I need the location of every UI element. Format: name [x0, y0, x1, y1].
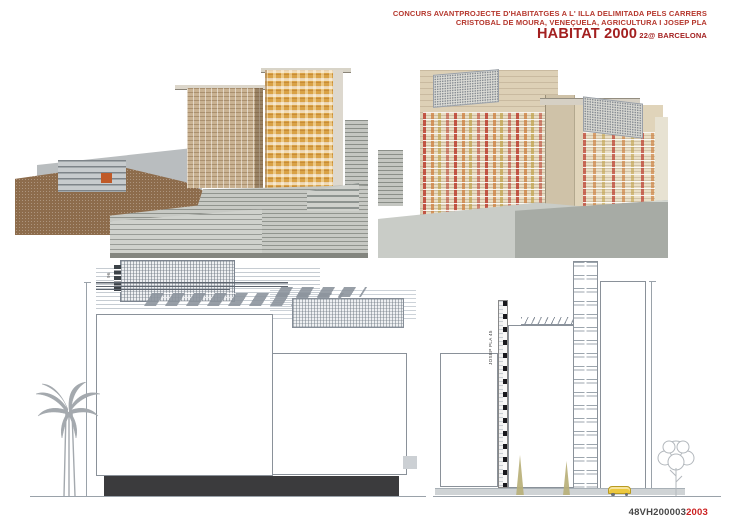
model-tower-orange [265, 70, 343, 188]
model-slab-stack [378, 150, 403, 206]
car-drawing [608, 486, 631, 496]
elevation-tower-right [600, 281, 646, 490]
model-shadow [110, 253, 368, 258]
facade [105, 323, 264, 473]
street-name-label: JOSEP PLA 45 [488, 303, 493, 365]
panel-code: 48VH2000032003 [629, 507, 708, 518]
model-colored-facade-right [583, 132, 658, 207]
ground-floor-base [104, 476, 399, 496]
header: CONCURS AVANTPROJECTE D'HABITATGES A L' … [393, 9, 707, 40]
project-subtitle: 22@ BARCELONA [639, 31, 707, 40]
facade [447, 359, 491, 484]
elevation-building-b [258, 353, 407, 475]
elevation-building-a [96, 314, 273, 476]
header-line-1: CONCURS AVANTPROJECTE D'HABITATGES A L' … [393, 9, 707, 18]
presentation-board: CONCURS AVANTPROJECTE D'HABITATGES A L' … [0, 0, 750, 531]
model-tower-beige [187, 88, 263, 188]
roof-plan-label: 96 [106, 262, 111, 278]
header-title-row: HABITAT 2000 22@ BARCELONA [393, 30, 707, 40]
facade [606, 288, 640, 487]
model-photo-left [15, 57, 368, 258]
elevation-tower-left [440, 353, 498, 487]
model-orange-accent [101, 173, 112, 183]
dimension-line [651, 281, 652, 490]
palm-tree-silhouette [32, 382, 104, 498]
roof-beams [96, 282, 288, 290]
elevation-tower-middle [508, 325, 574, 488]
side-annex [403, 456, 417, 469]
plinth-band [435, 488, 685, 495]
solar-panel-row [275, 287, 367, 297]
panel-code-number: 48VH200003 [629, 507, 686, 518]
stair-elevator-core [573, 261, 598, 490]
round-tree-drawing [653, 436, 699, 498]
model-mesh-canopy-left [433, 69, 499, 108]
facade [269, 360, 396, 471]
model-colored-facade [423, 112, 547, 216]
model-mesh-canopy-right [583, 96, 643, 138]
ground-line [433, 496, 721, 497]
elevation-drawing-left: 96 [30, 260, 435, 505]
roof-pergola [521, 317, 573, 325]
model-side-wall [655, 117, 668, 209]
roof-pergola-hatch [292, 298, 404, 328]
model-mid-wall [545, 95, 575, 220]
panel-code-year: 2003 [686, 507, 708, 518]
elevation-drawing-right: JOSEP PLA 45 [433, 261, 723, 506]
model-low-building [58, 160, 126, 192]
facade [525, 332, 567, 485]
striped-core-column [498, 300, 508, 488]
project-title: HABITAT 2000 [537, 26, 637, 42]
model-photo-right [378, 57, 668, 258]
